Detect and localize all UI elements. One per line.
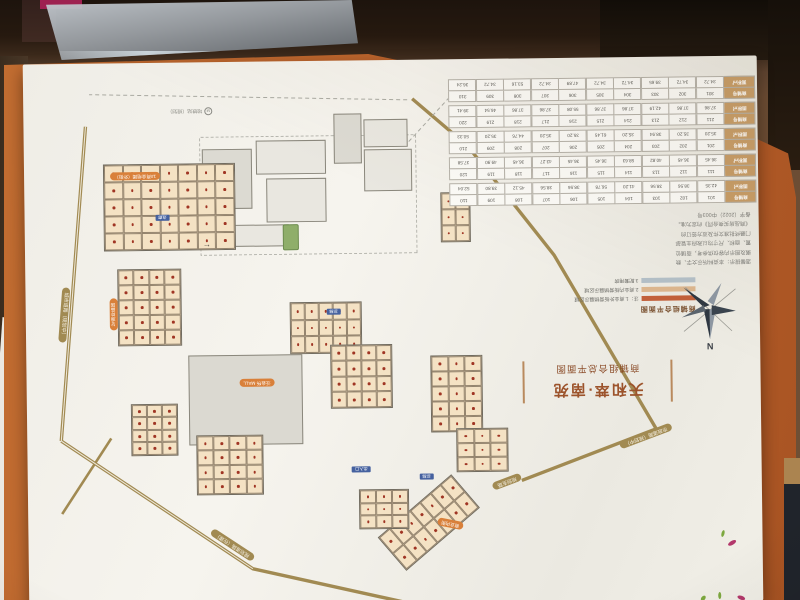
shop-unit bbox=[432, 401, 449, 416]
disclaimer-line: 温馨提示：本资料所示文字、数 bbox=[649, 256, 751, 266]
shop-unit bbox=[134, 330, 150, 345]
shop-unit bbox=[119, 315, 135, 330]
table-cell-area: 47.89 bbox=[558, 78, 586, 90]
site-plan-poster: 规划道路（在建）城市道路（规划中）市政道路（规划中）规划支路1#商业组团（外街）… bbox=[23, 56, 764, 600]
shop-unit bbox=[491, 429, 508, 443]
shop-unit bbox=[319, 319, 333, 336]
shop-unit bbox=[465, 401, 482, 416]
metro-icon: M bbox=[204, 107, 212, 115]
table-cell-shop: 207 bbox=[532, 141, 560, 153]
shop-unit bbox=[216, 215, 235, 232]
shop-unit bbox=[142, 199, 161, 216]
table-cell-shop: 211 bbox=[696, 113, 724, 125]
table-cell-shop: 201 bbox=[697, 139, 725, 151]
table-cell-shop: 105 bbox=[587, 193, 615, 205]
table-cell-shop: 212 bbox=[669, 114, 697, 126]
table-cell-shop: 103 bbox=[642, 192, 670, 204]
shop-unit bbox=[230, 450, 246, 465]
table-cell-area: 42.19 bbox=[641, 103, 669, 115]
shop-unit bbox=[333, 319, 347, 336]
shop-unit bbox=[162, 405, 177, 418]
table-cell-shop: 305 bbox=[586, 89, 614, 101]
table-cell-shop: 302 bbox=[669, 88, 697, 100]
table-cell-shop: 210 bbox=[449, 142, 477, 154]
shop-unit bbox=[347, 319, 361, 336]
table-cell-shop: 310 bbox=[449, 90, 477, 102]
table-cell-area: 35.20 bbox=[532, 130, 560, 142]
facility-tag: 扶梯 bbox=[326, 309, 340, 315]
table-edge-right bbox=[768, 0, 800, 170]
table-cell-shop: 301 bbox=[696, 87, 724, 99]
table-group: 商铺号111112113114115116117118119120面积㎡36.4… bbox=[440, 154, 756, 181]
existing-building bbox=[333, 113, 362, 163]
shop-unit bbox=[105, 233, 124, 250]
table-cell-area: 39.65 bbox=[641, 77, 669, 89]
table-cell-area: 37.86 bbox=[696, 102, 724, 114]
table-cell-shop: 205 bbox=[587, 141, 615, 153]
shop-unit bbox=[442, 225, 456, 241]
shop-unit bbox=[104, 199, 123, 216]
shop-cluster bbox=[456, 428, 509, 473]
table-cell-area: 36.45 bbox=[587, 155, 615, 167]
table-cell-area: 36.24 bbox=[448, 79, 476, 91]
shop-unit bbox=[216, 181, 235, 198]
metro-text: 地铁站（规划） bbox=[167, 108, 202, 115]
shop-unit bbox=[448, 371, 465, 386]
table-cell-area: 56.78 bbox=[587, 181, 615, 193]
title-block: 天和萃·南苑 商铺组合总平面图 bbox=[522, 360, 673, 404]
shop-unit bbox=[119, 300, 135, 315]
table-cell-shop: 109 bbox=[477, 194, 505, 206]
table-cell-area: 42.35 bbox=[697, 180, 725, 192]
table-cell-area: 43.27 bbox=[532, 156, 560, 168]
unit-table: 商铺号101102103104105106107108109110面积㎡42.3… bbox=[439, 73, 757, 207]
table-cell-shop: 220 bbox=[449, 116, 477, 128]
shop-unit bbox=[215, 164, 234, 181]
table-cell-area: 34.72 bbox=[696, 76, 724, 88]
table-header-area: 面积㎡ bbox=[724, 102, 756, 114]
direction-arrow-icon: ← bbox=[203, 242, 211, 251]
shop-cluster bbox=[131, 404, 179, 457]
table-cell-area: 37.58 bbox=[449, 157, 477, 169]
shop-unit bbox=[134, 270, 150, 285]
shop-unit bbox=[457, 429, 474, 443]
shop-unit bbox=[162, 417, 177, 430]
table-cell-area: 35.20 bbox=[614, 129, 642, 141]
shop-unit bbox=[150, 315, 166, 330]
shop-unit bbox=[142, 233, 161, 250]
table-cell-area: 38.56 bbox=[532, 182, 560, 194]
table-cell-area: 38.56 bbox=[642, 181, 670, 193]
table-cell-shop: 117 bbox=[532, 167, 560, 179]
shop-unit bbox=[147, 430, 162, 443]
compass-star-icon bbox=[679, 277, 740, 342]
shop-unit bbox=[132, 405, 147, 418]
facility-tag: 扶梯 bbox=[419, 473, 433, 479]
facility-tag: 连廊 bbox=[155, 215, 169, 221]
shop-unit bbox=[362, 392, 377, 408]
table-header-area: 面积㎡ bbox=[723, 76, 755, 88]
shop-unit bbox=[179, 232, 198, 249]
table-cell-shop: 208 bbox=[504, 142, 532, 154]
table-header-shop: 商铺号 bbox=[724, 139, 756, 151]
table-cell-shop: 217 bbox=[531, 115, 559, 127]
existing-building bbox=[266, 178, 327, 223]
table-cell-shop: 119 bbox=[477, 168, 505, 180]
table-group: 商铺号101102103104105106107108109110面积㎡42.3… bbox=[440, 180, 756, 207]
disclaimer-line: 《商品房买卖合同》约定为准。 bbox=[649, 219, 751, 229]
disclaimer-line: 门最终批准文件及双方签订的 bbox=[649, 228, 751, 238]
table-cell-area: 37.86 bbox=[614, 103, 642, 115]
shop-unit bbox=[198, 465, 214, 480]
table-cell-shop: 214 bbox=[614, 114, 642, 126]
shop-unit bbox=[134, 315, 150, 330]
shop-unit bbox=[147, 405, 162, 418]
disclaimer-block: 温馨提示：本资料所示文字、数据及图示内容仅供参考，商铺位置、面积、尺寸均以政府主… bbox=[649, 208, 752, 265]
shop-unit bbox=[197, 436, 213, 451]
shop-unit bbox=[198, 480, 214, 495]
shop-unit bbox=[134, 285, 150, 300]
table-cell-area: 36.45 bbox=[504, 156, 532, 168]
table-cell-area: 41.20 bbox=[615, 181, 643, 193]
shop-unit bbox=[448, 386, 465, 401]
shop-unit bbox=[197, 181, 216, 198]
shop-unit bbox=[465, 371, 482, 386]
table-cell-shop: 106 bbox=[560, 193, 588, 205]
table-cell-shop: 206 bbox=[559, 141, 587, 153]
shop-unit bbox=[377, 376, 392, 392]
table-cell-shop: 110 bbox=[450, 194, 478, 206]
cluster-label-tag: 2#商业组团 bbox=[110, 299, 118, 331]
legend-label: 注：1.商业外街营销展示区域 bbox=[574, 295, 638, 303]
shop-unit bbox=[491, 457, 508, 471]
shop-unit bbox=[392, 490, 408, 503]
floor-dark-corner bbox=[784, 484, 800, 600]
table-cell-shop: 107 bbox=[532, 193, 560, 205]
project-title: 天和萃·南苑 bbox=[533, 379, 663, 402]
shop-unit bbox=[376, 515, 392, 528]
table-cell-area: 34.72 bbox=[476, 79, 504, 91]
mall-building bbox=[188, 354, 303, 445]
shop-unit bbox=[132, 430, 147, 443]
table-cell-area: 38.56 bbox=[670, 180, 698, 192]
table-cell-area: 37.86 bbox=[669, 102, 697, 114]
table-cell-shop: 304 bbox=[614, 88, 642, 100]
shop-unit bbox=[162, 430, 177, 443]
shop-unit bbox=[214, 465, 230, 480]
disclaimer-line: 备字（2022）中003号 bbox=[649, 209, 751, 219]
table-cell-shop: 219 bbox=[476, 116, 504, 128]
shop-unit bbox=[360, 503, 376, 516]
shop-unit bbox=[162, 442, 177, 455]
shop-unit bbox=[431, 371, 448, 386]
shop-unit bbox=[230, 465, 246, 480]
table-cell-area: 34.72 bbox=[586, 77, 614, 89]
shop-unit bbox=[458, 457, 475, 471]
shop-unit bbox=[165, 270, 181, 285]
table-header-area: 面积㎡ bbox=[725, 180, 757, 192]
table-cell-shop: 116 bbox=[559, 167, 587, 179]
shop-cluster bbox=[330, 344, 393, 409]
shop-unit bbox=[346, 345, 361, 361]
table-cell-shop: 215 bbox=[586, 115, 614, 127]
shop-unit bbox=[361, 361, 376, 377]
facility-tag: 出入口 bbox=[352, 466, 371, 472]
shop-unit bbox=[360, 490, 376, 503]
table-cell-shop: 306 bbox=[559, 89, 587, 101]
shop-unit bbox=[465, 386, 482, 401]
shop-unit bbox=[291, 336, 305, 353]
shop-unit bbox=[165, 315, 181, 330]
shop-unit bbox=[178, 181, 197, 198]
table-cell-area: 39.80 bbox=[477, 183, 505, 195]
shop-unit bbox=[132, 443, 147, 456]
shop-unit bbox=[197, 215, 216, 232]
table-cell-shop: 104 bbox=[615, 192, 643, 204]
shop-cluster bbox=[359, 489, 409, 530]
shop-unit bbox=[118, 285, 134, 300]
shop-unit bbox=[123, 182, 142, 199]
table-cell-area: 34.72 bbox=[668, 76, 696, 88]
table-header-shop: 商铺号 bbox=[724, 87, 756, 99]
shop-unit bbox=[149, 270, 165, 285]
table-header-shop: 商铺号 bbox=[724, 165, 756, 177]
table-header-area: 面积㎡ bbox=[724, 128, 756, 140]
table-cell-area: 36.45 bbox=[697, 154, 725, 166]
shop-unit bbox=[214, 436, 230, 451]
table-cell-area: 36.45 bbox=[669, 154, 697, 166]
existing-building bbox=[256, 140, 326, 175]
table-cell-area: 40.82 bbox=[642, 155, 670, 167]
existing-building bbox=[363, 119, 407, 148]
shop-unit bbox=[105, 216, 124, 233]
shop-unit bbox=[150, 300, 166, 315]
table-cell-area: 35.20 bbox=[697, 128, 725, 140]
shop-unit bbox=[392, 503, 408, 516]
table-cell-area: 55.08 bbox=[559, 104, 587, 116]
shop-unit bbox=[455, 209, 469, 225]
table-cell-shop: 204 bbox=[614, 140, 642, 152]
table-cell-shop: 308 bbox=[504, 90, 532, 102]
shop-unit bbox=[457, 443, 474, 457]
shop-unit bbox=[246, 465, 262, 480]
shop-unit bbox=[123, 233, 142, 250]
shop-unit bbox=[179, 215, 198, 232]
table-cell-shop: 115 bbox=[587, 167, 615, 179]
table-cell-area: 50.33 bbox=[449, 131, 477, 143]
table-cell-area: 44.76 bbox=[504, 130, 532, 142]
table-cell-shop: 213 bbox=[641, 114, 669, 126]
table-cell-area: 34.72 bbox=[531, 78, 559, 90]
table-cell-shop: 102 bbox=[670, 192, 698, 204]
table-cell-area: 37.86 bbox=[531, 104, 559, 116]
shop-unit bbox=[165, 330, 181, 345]
table-header-area: 面积㎡ bbox=[724, 154, 756, 166]
shop-unit bbox=[147, 417, 162, 430]
table-group: 商铺号211212213214215216217218219220面积㎡37.8… bbox=[439, 102, 755, 129]
shop-unit bbox=[197, 451, 213, 466]
table-cell-shop: 216 bbox=[559, 115, 587, 127]
shop-unit bbox=[160, 165, 179, 182]
cluster-label-tag: 泛会所·MALL bbox=[239, 379, 274, 387]
table-cell-shop: 202 bbox=[669, 140, 697, 152]
shop-unit bbox=[214, 451, 230, 466]
shop-unit bbox=[305, 336, 319, 353]
table-cell-area: 37.86 bbox=[586, 103, 614, 115]
table-cell-shop: 112 bbox=[669, 166, 697, 178]
road-line bbox=[61, 438, 112, 514]
table-cell-area: 49.90 bbox=[477, 157, 505, 169]
shop-unit bbox=[230, 436, 246, 451]
table-cell-shop: 218 bbox=[504, 116, 532, 128]
table-cell-area: 45.12 bbox=[505, 182, 533, 194]
shop-unit bbox=[376, 361, 391, 377]
shop-unit bbox=[104, 182, 123, 199]
confetti-dot bbox=[718, 592, 721, 599]
shop-unit bbox=[474, 457, 491, 471]
table-cell-area: 37.86 bbox=[504, 104, 532, 116]
disclaimer-line: 置、面积、尺寸均以政府主管部 bbox=[649, 237, 751, 247]
table-cell-area: 46.54 bbox=[476, 105, 504, 117]
shop-unit bbox=[347, 392, 362, 408]
table-header-shop: 商铺号 bbox=[724, 113, 756, 125]
metro-station-label: M 地铁站（规划） bbox=[167, 107, 212, 116]
table-cell-area: 35.20 bbox=[559, 130, 587, 142]
table-cell-shop: 209 bbox=[477, 142, 505, 154]
shop-unit bbox=[150, 330, 166, 345]
shop-unit bbox=[178, 164, 197, 181]
shop-unit bbox=[197, 164, 216, 181]
poster-document: 规划道路（在建）城市道路（规划中）市政道路（规划中）规划支路1#商业组团（外街）… bbox=[23, 56, 764, 600]
acrylic-block bbox=[46, 0, 358, 60]
shop-unit bbox=[432, 386, 449, 401]
shop-unit bbox=[305, 303, 319, 320]
shop-unit bbox=[291, 320, 305, 337]
shop-unit bbox=[123, 216, 142, 233]
shop-unit bbox=[247, 479, 263, 494]
shop-unit bbox=[347, 302, 361, 319]
shop-unit bbox=[456, 225, 470, 241]
shop-unit bbox=[431, 356, 448, 371]
shop-unit bbox=[362, 376, 377, 392]
shop-unit bbox=[331, 346, 346, 362]
shop-unit bbox=[160, 199, 179, 216]
table-cell-shop: 118 bbox=[505, 168, 533, 180]
shop-unit bbox=[216, 232, 235, 249]
north-label: N bbox=[672, 341, 748, 352]
shop-unit bbox=[197, 198, 216, 215]
shop-unit bbox=[346, 361, 361, 377]
legend-label: 3.配套用房 bbox=[614, 277, 638, 284]
table-cell-shop: 111 bbox=[697, 165, 725, 177]
cluster-label-tag: 1#商业组团（外街） bbox=[110, 172, 160, 180]
shop-unit bbox=[141, 182, 160, 199]
table-cell-shop: 108 bbox=[505, 194, 533, 206]
shop-unit bbox=[432, 416, 449, 431]
shop-unit bbox=[165, 285, 181, 300]
shop-unit bbox=[377, 392, 392, 408]
road-centerline bbox=[57, 127, 89, 441]
shop-unit bbox=[149, 285, 165, 300]
shop-unit bbox=[123, 199, 142, 216]
shop-unit bbox=[230, 479, 246, 494]
table-cell-area: 34.72 bbox=[613, 77, 641, 89]
table-cell-area: 39.41 bbox=[449, 105, 477, 117]
shop-unit bbox=[491, 443, 508, 457]
shop-unit bbox=[441, 209, 455, 225]
table-cell-shop: 114 bbox=[614, 166, 642, 178]
table-cell-shop: 309 bbox=[476, 90, 504, 102]
table-cell-area: 35.20 bbox=[669, 128, 697, 140]
disclaimer-line: 据及图示内容仅供参考，商铺位 bbox=[649, 247, 751, 257]
table-header-shop: 商铺号 bbox=[725, 191, 757, 203]
shop-unit bbox=[179, 198, 198, 215]
table-cell-area: 61.45 bbox=[587, 129, 615, 141]
shop-unit bbox=[160, 182, 179, 199]
shop-unit bbox=[474, 429, 491, 443]
table-cell-shop: 120 bbox=[450, 168, 478, 180]
shop-unit bbox=[165, 300, 181, 315]
table-cell-area: 52.04 bbox=[450, 183, 478, 195]
table-cell-shop: 101 bbox=[697, 191, 725, 203]
shop-unit bbox=[214, 479, 230, 494]
shop-unit bbox=[465, 356, 482, 371]
shop-unit bbox=[132, 418, 147, 431]
shop-unit bbox=[134, 300, 150, 315]
boundary-dashed bbox=[89, 91, 407, 104]
table-cell-shop: 113 bbox=[642, 166, 670, 178]
shop-unit bbox=[291, 303, 305, 320]
shop-unit bbox=[332, 377, 347, 393]
shop-cluster bbox=[117, 269, 182, 347]
table-cell-area: 38.94 bbox=[642, 129, 670, 141]
table-cell-shop: 203 bbox=[642, 140, 670, 152]
photo-scene: 规划道路（在建）城市道路（规划中）市政道路（规划中）规划支路1#商业组团（外街）… bbox=[0, 0, 800, 600]
shop-cluster bbox=[430, 355, 483, 433]
shop-unit bbox=[160, 233, 179, 250]
shop-unit bbox=[347, 376, 362, 392]
table-cell-shop: 303 bbox=[641, 88, 669, 100]
shop-unit bbox=[376, 503, 392, 516]
shop-unit bbox=[216, 198, 235, 215]
shop-unit bbox=[332, 392, 347, 408]
plan-subtitle: 商铺组合总平面图 bbox=[532, 362, 662, 378]
compass-rose: N bbox=[671, 272, 748, 352]
shop-unit bbox=[474, 443, 491, 457]
shop-unit bbox=[118, 270, 134, 285]
shop-unit bbox=[376, 490, 392, 503]
table-cell-area: 58.63 bbox=[614, 155, 642, 167]
shop-unit bbox=[376, 345, 391, 361]
table-cell-shop: 307 bbox=[531, 89, 559, 101]
table-group: 商铺号301302303304305306307308309310面积㎡34.7… bbox=[439, 76, 755, 103]
shop-unit bbox=[119, 330, 135, 345]
shop-cluster bbox=[196, 435, 264, 496]
shop-unit bbox=[147, 442, 162, 455]
table-cell-area: 53.16 bbox=[503, 78, 531, 90]
shop-unit bbox=[449, 401, 466, 416]
shop-unit bbox=[246, 436, 262, 451]
shop-unit bbox=[331, 361, 346, 377]
table-cell-area: 36.45 bbox=[559, 156, 587, 168]
landscape-green bbox=[283, 224, 299, 250]
legend-label: 2.商业内街营销展示区域 bbox=[584, 286, 638, 294]
shop-unit bbox=[360, 516, 376, 529]
table-cell-area: 35.20 bbox=[477, 131, 505, 143]
shop-unit bbox=[448, 356, 465, 371]
shop-unit bbox=[392, 515, 408, 528]
shop-unit bbox=[305, 320, 319, 337]
